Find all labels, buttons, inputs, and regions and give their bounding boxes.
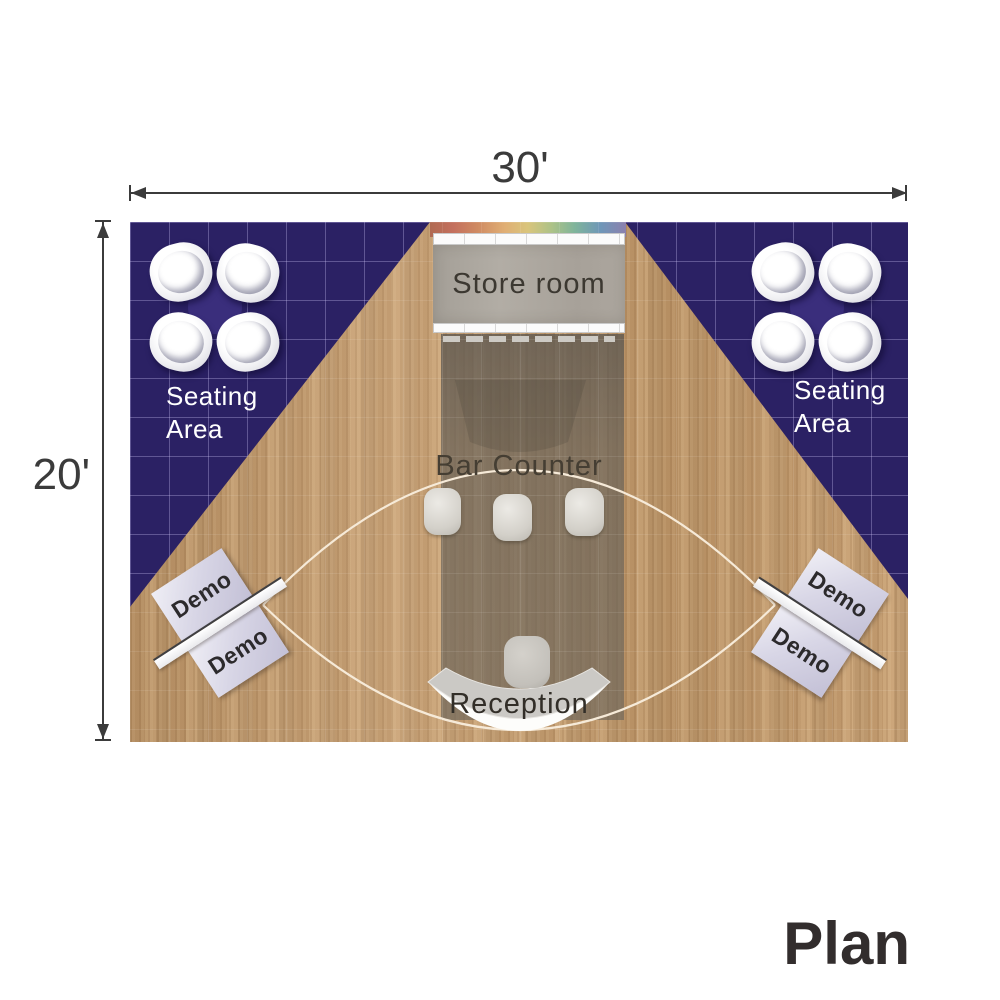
seating-label-line1: Seating [166,380,258,413]
page-title: Plan [660,914,910,974]
seating-label-line2: Area [794,407,886,440]
seating-label-line2: Area [166,413,258,446]
demo-stations-right-inner: Demo Demo [722,530,908,717]
arrow-left-icon [131,187,146,199]
seating-area-left-label: Seating Area [166,380,258,445]
seating-label-line1: Seating [794,374,886,407]
seating-area-left [130,222,300,392]
store-room: Store room [433,233,625,342]
arrow-up-icon [97,223,109,238]
store-room-wall-top [433,233,625,245]
bar-stool [424,488,461,535]
seating-area-right-label: Seating Area [794,374,886,439]
floor-plan-page: 30' 20' Store room Bar Counter Re [0,0,1000,1000]
height-dimension-label: 20' [14,450,90,500]
demo-stations-left: Demo Demo [135,548,305,698]
arrow-right-icon [892,187,907,199]
demo-stations-left-inner: Demo Demo [130,530,318,717]
reception-chair [504,636,550,688]
bar-stool [493,494,532,541]
height-dimension-tick-top [95,220,111,222]
reception-label: Reception [426,688,612,721]
bar-stool [565,488,604,536]
booth-plan: Store room Bar Counter Reception Demo De… [130,222,908,742]
demo-stations-right: Demo Demo [735,548,905,698]
arrow-down-icon [97,724,109,739]
height-dimension-line [102,222,104,740]
bar-counter-shape [455,380,586,452]
seating-area-right [732,222,902,392]
height-dimension-tick-bottom [95,739,111,741]
store-room-wall-bottom [433,323,625,333]
width-dimension-label: 30' [440,143,600,193]
store-room-label: Store room [433,245,625,323]
store-room-shelf-marks [443,336,615,342]
bar-counter-label: Bar Counter [426,450,612,483]
